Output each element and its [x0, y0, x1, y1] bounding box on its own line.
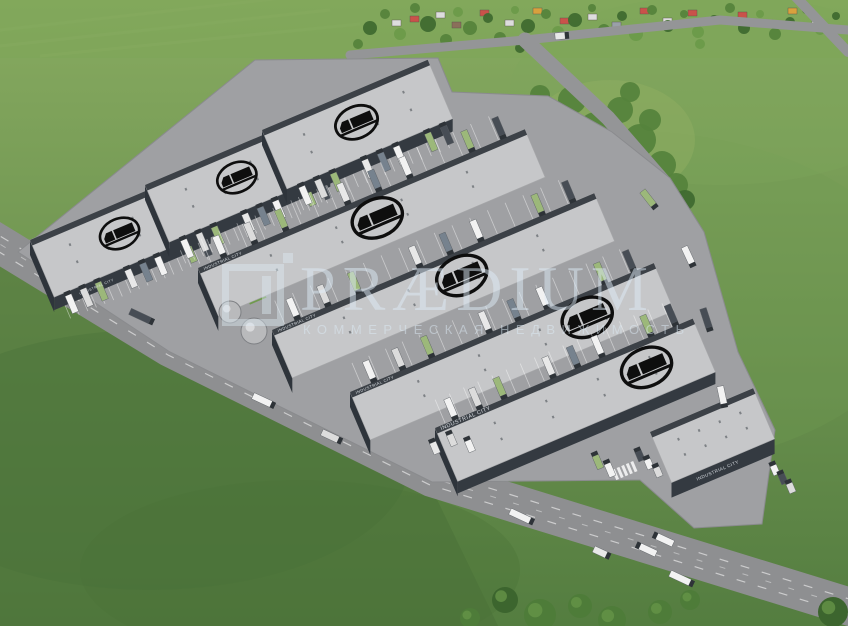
tree: [617, 11, 627, 21]
tree: [647, 5, 657, 15]
tree: [832, 12, 840, 20]
tree: [363, 21, 377, 35]
tree: [680, 10, 688, 18]
village-house: [410, 16, 419, 22]
rendered-scene: INDUSTRIAL CITYINDUSTRIAL CITYINDUSTRIAL…: [0, 0, 848, 626]
village-house: [392, 20, 401, 26]
tree: [541, 9, 551, 19]
village-house: [560, 18, 569, 24]
tree: [588, 4, 596, 12]
village-house: [505, 20, 514, 26]
tree-highlight: [571, 597, 582, 608]
tree: [353, 39, 363, 49]
truck-trailer: [555, 32, 566, 40]
village-house: [436, 12, 445, 18]
tree: [511, 6, 519, 14]
tree: [463, 21, 477, 35]
storage-silo: [241, 318, 267, 344]
silo-top: [219, 301, 241, 323]
tree: [695, 39, 705, 49]
tree: [769, 28, 781, 40]
truck: [555, 32, 570, 40]
silo-highlight: [223, 305, 231, 313]
storage-silo: [219, 301, 241, 323]
tree: [394, 28, 406, 40]
tree-highlight: [822, 601, 836, 615]
aerial-industrial-park-render: INDUSTRIAL CITYINDUSTRIAL CITYINDUSTRIAL…: [0, 0, 848, 626]
village-house: [788, 8, 797, 14]
tree: [453, 7, 463, 17]
tree-highlight: [651, 603, 662, 614]
village-house: [588, 14, 597, 20]
tree-highlight: [602, 610, 615, 623]
tree-highlight: [683, 593, 692, 602]
tree-highlight: [495, 590, 507, 602]
tree-highlight: [528, 603, 542, 617]
tree: [620, 82, 640, 102]
tree: [483, 13, 493, 23]
village-house: [533, 8, 542, 14]
tree: [725, 3, 735, 13]
tree: [692, 26, 704, 38]
tree: [639, 109, 661, 131]
tree: [756, 10, 764, 18]
tree: [380, 9, 390, 19]
truck-cab: [565, 32, 570, 39]
village-house: [452, 22, 461, 28]
silo-top: [241, 318, 267, 344]
tree: [420, 16, 436, 32]
tree: [568, 13, 582, 27]
tree-highlight: [463, 611, 472, 620]
village-house: [688, 10, 697, 16]
tree: [521, 19, 535, 33]
silo-highlight: [246, 323, 255, 332]
tree: [410, 3, 420, 13]
